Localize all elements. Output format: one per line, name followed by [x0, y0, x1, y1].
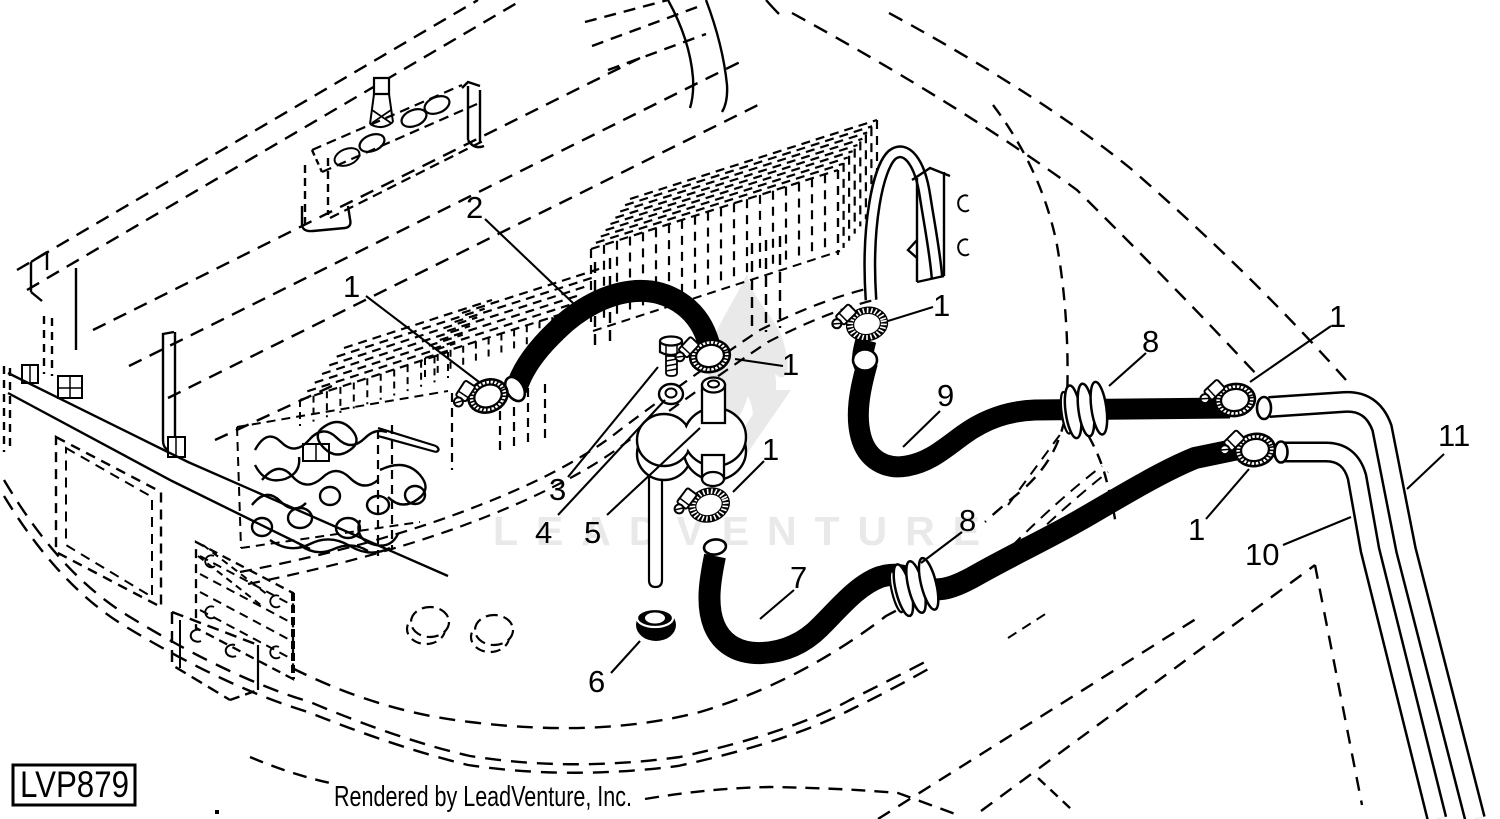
svg-text:Rendered by LeadVenture, Inc.: Rendered by LeadVenture, Inc. — [334, 781, 632, 813]
svg-text:3: 3 — [549, 472, 566, 507]
svg-text:11: 11 — [1438, 418, 1470, 453]
svg-text:8: 8 — [959, 503, 976, 538]
svg-text:1: 1 — [1188, 512, 1205, 547]
svg-text:5: 5 — [584, 515, 601, 550]
svg-text:6: 6 — [588, 664, 605, 699]
svg-text:4: 4 — [535, 515, 552, 550]
svg-text:1: 1 — [782, 347, 799, 382]
svg-text:1: 1 — [933, 288, 950, 323]
svg-text:7: 7 — [790, 560, 807, 595]
svg-text:10: 10 — [1245, 537, 1279, 572]
svg-text:1: 1 — [762, 432, 779, 467]
svg-text:2: 2 — [466, 190, 483, 225]
svg-text:1: 1 — [1329, 299, 1346, 334]
svg-text:1: 1 — [343, 269, 360, 304]
svg-text:8: 8 — [1142, 324, 1159, 359]
svg-text:LVP879: LVP879 — [20, 764, 129, 805]
svg-text:9: 9 — [937, 378, 954, 413]
